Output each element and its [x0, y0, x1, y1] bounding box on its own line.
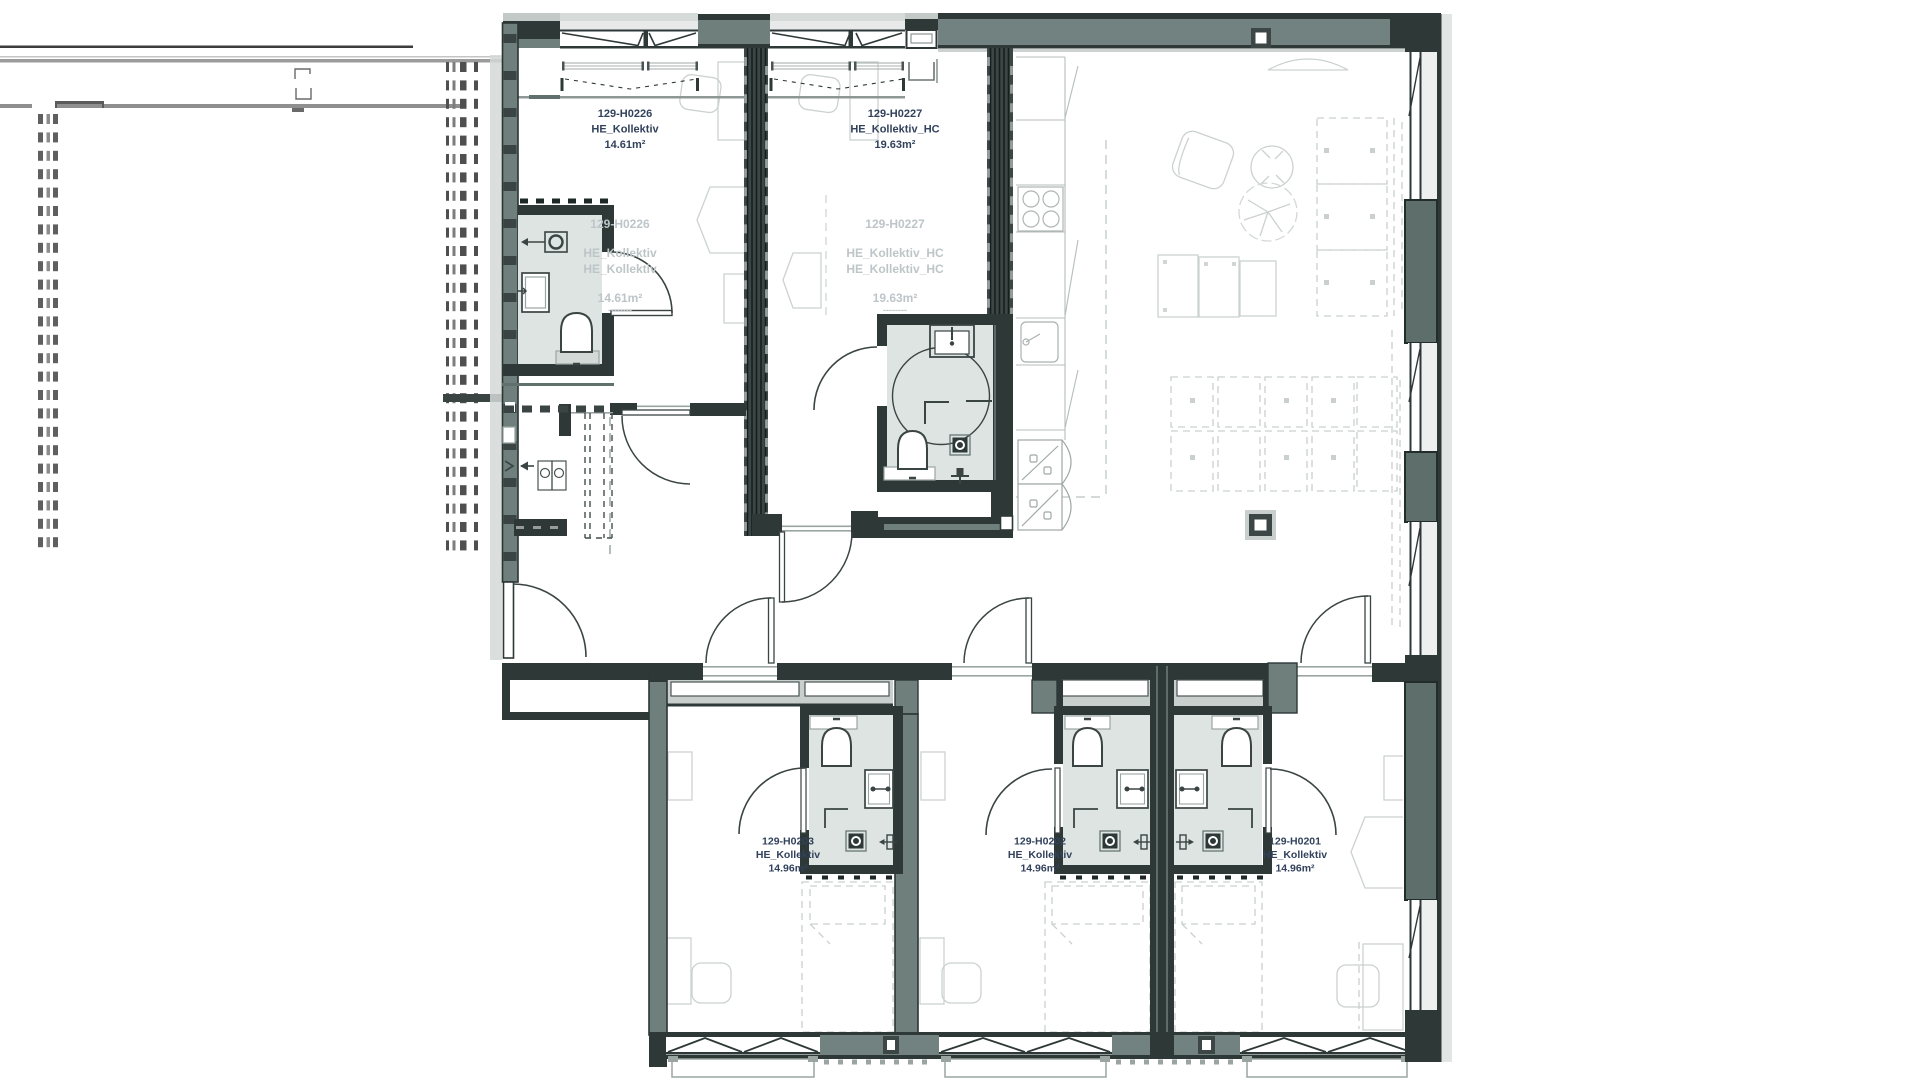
- svg-text:HE_Kollektiv_HC: HE_Kollektiv_HC: [846, 246, 944, 260]
- svg-text:14.61m²: 14.61m²: [598, 291, 643, 305]
- svg-text:HE_Kollektiv_HC: HE_Kollektiv_HC: [846, 262, 944, 276]
- svg-text:129-H0227: 129-H0227: [865, 217, 925, 231]
- svg-text:14.61m²: 14.61m²: [605, 139, 646, 151]
- svg-text:14.96m²: 14.96m²: [768, 863, 808, 875]
- svg-text:129-H0226: 129-H0226: [598, 108, 652, 120]
- svg-text:--------: --------: [608, 305, 632, 315]
- svg-text:HE_Kollektiv_HC: HE_Kollektiv_HC: [850, 124, 939, 136]
- svg-text:14.96m²: 14.96m²: [1275, 863, 1315, 875]
- svg-text:129-H0201: 129-H0201: [1269, 836, 1321, 848]
- svg-text:HE_Kollektiv: HE_Kollektiv: [583, 246, 657, 260]
- svg-text:14.96m²: 14.96m²: [1020, 863, 1060, 875]
- svg-text:HE_Kollektiv: HE_Kollektiv: [583, 262, 657, 276]
- svg-text:19.63m²: 19.63m²: [875, 139, 916, 151]
- svg-text:HE_Kollektiv: HE_Kollektiv: [591, 124, 659, 136]
- svg-text:129-H0203: 129-H0203: [762, 836, 814, 848]
- svg-text:19.63m²: 19.63m²: [873, 291, 918, 305]
- svg-text:129-H0202: 129-H0202: [1014, 836, 1066, 848]
- svg-text:--------: --------: [883, 305, 907, 315]
- svg-text:HE_Kollektiv: HE_Kollektiv: [756, 849, 820, 861]
- svg-text:129-H0226: 129-H0226: [590, 217, 650, 231]
- svg-text:129-H0227: 129-H0227: [868, 108, 922, 120]
- svg-text:HE_Kollektiv: HE_Kollektiv: [1008, 849, 1072, 861]
- svg-text:HE_Kollektiv: HE_Kollektiv: [1263, 849, 1327, 861]
